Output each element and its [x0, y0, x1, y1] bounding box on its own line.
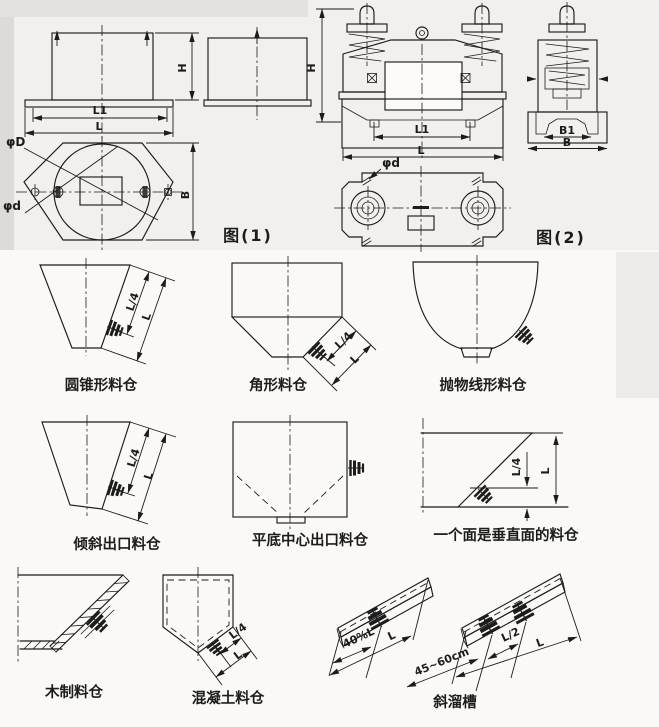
vibrator-motor-icon — [206, 638, 226, 658]
hopper-one-vertical-face: L/4 L 一个面是垂直面的料仓 — [421, 418, 579, 544]
conical-dim-l: L — [139, 311, 154, 322]
hopper-angular: L/4 L 角形料仓 — [232, 256, 376, 394]
vibrator-motor-icon — [307, 341, 330, 364]
fig1-dim-l: L — [95, 120, 102, 133]
wood-hatch — [53, 583, 127, 644]
vibrator-motor-icon — [474, 612, 501, 639]
hopper-conical: L/4 L 圆锥形料仓 — [40, 258, 175, 394]
vertical-face-caption: 一个面是垂直面的料仓 — [434, 526, 579, 544]
vibrator-motor-icon — [514, 325, 537, 348]
vibrator-motor-icon — [85, 610, 111, 636]
conical-dim-l4: L/4 — [124, 291, 142, 313]
inclined-outlet-caption: 倾斜出口料仓 — [73, 535, 161, 553]
concrete-caption: 混凝土料仓 — [192, 689, 265, 707]
fig2-dim-h: H — [305, 63, 318, 72]
chute-caption: 斜溜槽 — [432, 693, 477, 711]
fig1-dim-h: H — [176, 63, 189, 72]
fig2-dim-l1: L1 — [415, 123, 430, 136]
technical-drawing-sheet: H L1 L φD φd B 图(1) — [0, 0, 659, 727]
chute-dim-l-full: L — [534, 635, 545, 650]
fig1-dim-b: B — [179, 191, 192, 199]
inclined-outlet-dim-l4: L/4 — [125, 447, 143, 469]
fig2-dim-l: L — [417, 144, 424, 157]
hopper-wooden: 木制料仓 — [18, 567, 129, 701]
wooden-caption: 木制料仓 — [44, 683, 103, 701]
parabolic-caption: 抛物线形料仓 — [440, 376, 527, 394]
conical-caption: 圆锥形料仓 — [65, 376, 138, 394]
vertical-face-dim-l4: L/4 — [510, 457, 523, 476]
hopper-inclined-outlet: L/4 L 倾斜出口料仓 — [42, 415, 176, 553]
hopper-flat-bottom: 平底中心出口料仓 — [233, 415, 368, 549]
angular-dim-l4: L/4 — [332, 329, 355, 352]
vibrator-motor-icon — [508, 599, 535, 626]
fig2-caption: 图(2) — [536, 228, 586, 247]
vibrator-motor-icon — [348, 460, 364, 476]
vertical-face-dim-l: L — [539, 467, 552, 474]
flat-bottom-caption: 平底中心出口料仓 — [252, 531, 368, 549]
concrete-dim-l4: L/4 — [227, 620, 250, 642]
hopper-parabolic: 抛物线形料仓 — [413, 255, 538, 394]
diagram-canvas: H L1 L φD φd B 图(1) — [0, 0, 659, 727]
vibrator-motor-icon — [473, 484, 496, 507]
fig2-dim-b: B — [563, 136, 571, 149]
fig1-dim-phi-D: φD — [6, 135, 25, 149]
chute-dim-l2: L/2 — [499, 625, 521, 645]
fig2-dim-phi-d: φd — [382, 156, 400, 170]
chute-dim-l-single: L — [386, 628, 398, 643]
concrete-dim-l: L — [231, 648, 244, 663]
angular-dim-l: L — [348, 352, 362, 366]
fig1-dim-l1: L1 — [93, 104, 108, 117]
fig1-dim-phi-d: φd — [3, 199, 21, 213]
angular-caption: 角形料仓 — [249, 376, 307, 394]
hopper-concrete: L/4 L 混凝土料仓 — [163, 567, 265, 707]
scan-edge-top — [0, 0, 308, 17]
scan-edge-right — [616, 252, 659, 398]
fig1-caption: 图(1) — [223, 226, 273, 245]
inclined-chute: 40%L L L/2 L 45~60cm 斜溜槽 — [329, 574, 581, 711]
